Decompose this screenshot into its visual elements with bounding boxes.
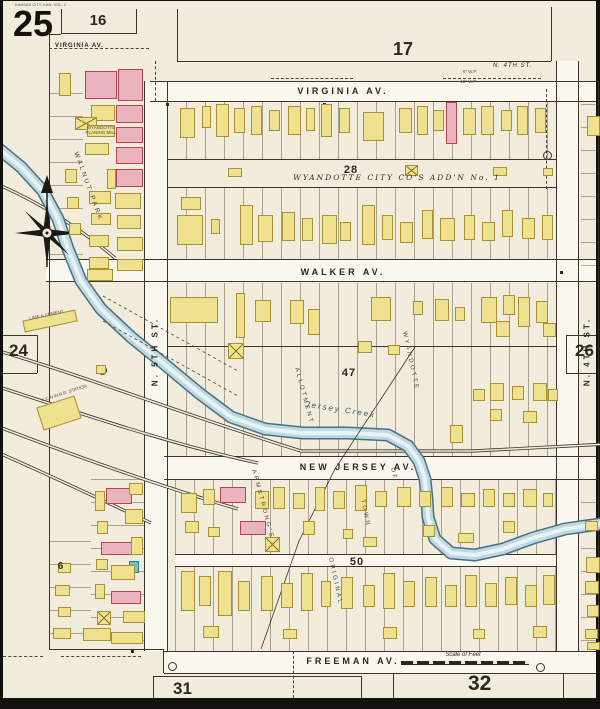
new-jersey-av-label: NEW JERSEY AV. [253,462,463,472]
building [96,365,106,374]
building [450,425,463,443]
building [95,491,105,511]
building [441,487,453,507]
east-column-lots-top [581,81,598,281]
building [65,169,77,183]
building [53,628,71,639]
building [67,197,79,209]
building [522,218,535,239]
building [482,222,495,241]
building [502,210,513,237]
building [321,581,331,607]
building [181,571,195,611]
block-47-lots [167,283,556,456]
building [181,197,201,210]
building [503,295,515,315]
building [89,257,109,269]
building [363,585,375,607]
block-50-number: 50 [345,556,369,568]
building [587,605,599,617]
building [518,297,530,327]
block-47-number: 47 [337,367,361,379]
building [216,104,229,137]
building [321,104,332,137]
building [465,575,477,607]
building [116,169,143,187]
building [399,108,412,133]
virginia-av-west-label: VIRGINIA AV. [55,43,104,49]
adjacent-sheet-16: 16 [61,12,135,29]
building [240,205,253,245]
building [85,71,117,99]
building [238,581,250,611]
building [587,642,600,650]
building [481,297,497,323]
water-pipe-6-label: 6" W.P. [443,70,477,75]
building [255,300,271,322]
n-5th-st-label: N. 5TH ST. [151,297,160,407]
map-paper: KANSAS CITY, KAN. VOL. 2 25 16 17 24 26 … [3,1,596,698]
block-50-lots-south [175,566,556,651]
building [228,168,242,177]
building [273,487,285,509]
building [587,116,600,136]
building [397,487,411,507]
building [417,106,428,135]
building [125,509,143,524]
building [315,487,325,511]
virginia-av-label: VIRGINIA AV. [243,86,443,96]
block-6-number: 6 [53,561,69,572]
building [585,581,599,594]
water-pipe-10-label: 10" W.P. [443,80,477,85]
building [363,537,377,547]
adjacent-sheet-24: 24 [9,341,28,361]
building [422,210,433,239]
building [425,577,437,607]
building [116,127,143,143]
building [548,389,558,401]
building [523,411,537,423]
building [400,222,413,243]
building [525,585,537,607]
building [543,575,555,605]
building [490,383,504,401]
building [463,108,476,135]
building [203,626,219,638]
building [202,106,211,128]
building [288,106,301,135]
building [461,493,475,507]
building [403,581,415,607]
building [85,143,109,155]
building [512,386,524,400]
building [269,110,280,131]
scale-bar [401,661,529,665]
building [293,493,305,509]
building [464,215,475,240]
building [503,521,515,533]
building [95,584,105,599]
building [87,269,113,281]
building [116,105,143,123]
building [523,489,537,507]
building [203,489,215,505]
building [111,632,143,644]
building [343,529,353,539]
walker-av-label: WALKER AV. [263,267,423,277]
building [83,628,111,641]
building [533,383,547,401]
building [282,212,295,241]
building [496,321,510,337]
building [503,493,515,507]
building [535,108,546,133]
building [97,521,108,534]
water-pipe-marker [536,663,545,672]
building [301,573,313,611]
building [251,106,262,135]
building [177,215,203,245]
building [308,309,320,335]
addition-label: WYANDOTTE CITY CO'S ADD'N No. 1 [241,173,553,182]
building [117,237,143,251]
water-pipe-marker [168,662,177,671]
building [234,108,245,133]
building [455,307,465,321]
building [283,629,297,639]
building [303,521,315,535]
building [446,102,457,144]
building [501,110,512,131]
building [258,215,273,242]
building [236,293,245,338]
building [383,627,397,639]
building [220,487,246,503]
building [585,521,598,531]
building [340,222,351,241]
building [115,193,141,209]
n-4th-st-label: N. 4TH ST. [583,297,592,407]
n-4th-st-top-label: N. 4TH ST. [493,63,532,69]
building [58,607,71,617]
building [96,559,108,570]
building [101,542,135,555]
building [281,583,293,608]
building [543,493,553,507]
building [485,583,497,607]
building [211,219,220,234]
building [435,299,449,321]
building [413,301,423,315]
building [228,343,244,359]
building [458,533,474,543]
building [131,537,143,555]
building [483,489,495,507]
scale-label: Scale of Feet [393,652,533,658]
building [517,106,528,135]
planing-mill-label: WYANDOTTE PLANING MILL [85,126,117,136]
building [375,491,387,507]
building [322,215,337,244]
building [339,108,350,133]
building [445,585,457,607]
building [111,591,141,604]
adjacent-sheet-17: 17 [393,39,413,60]
building [362,205,375,245]
sheet-number: 25 [13,3,53,45]
building [363,112,384,141]
building [419,491,431,507]
building [180,108,195,138]
building [306,108,315,131]
building [490,409,502,421]
building [170,297,218,323]
building [440,218,455,241]
building [302,218,313,241]
building [333,491,345,509]
building [117,215,141,229]
building [107,169,116,189]
building [585,629,598,639]
building [358,341,372,353]
building [89,235,109,247]
building [59,73,71,96]
building [185,521,199,533]
building [533,626,547,638]
building [97,611,111,625]
building [423,525,435,537]
building [543,323,556,337]
building [69,223,81,235]
building [586,557,600,573]
building [433,110,444,131]
building [123,611,145,623]
sanborn-map-sheet: KANSAS CITY, KAN. VOL. 2 25 16 17 24 26 … [0,0,600,709]
building [181,493,197,513]
building [542,215,553,240]
building [536,301,548,323]
building [111,565,135,580]
water-pipe-marker [543,151,552,160]
building [473,629,485,639]
building [382,215,393,240]
building [261,576,273,611]
building [265,537,280,552]
building [388,345,400,355]
building [129,483,143,495]
building [290,300,304,324]
building [55,585,70,596]
building [117,259,143,271]
adjacent-sheet-31: 31 [173,679,192,699]
building [383,573,395,609]
building [473,389,485,401]
building [118,69,143,101]
building [218,571,232,616]
building [208,527,220,537]
building [199,576,211,606]
building [505,577,517,605]
building [481,106,494,135]
building [371,297,391,321]
building [116,147,143,164]
adjacent-sheet-32: 32 [468,672,491,696]
building [240,521,266,535]
